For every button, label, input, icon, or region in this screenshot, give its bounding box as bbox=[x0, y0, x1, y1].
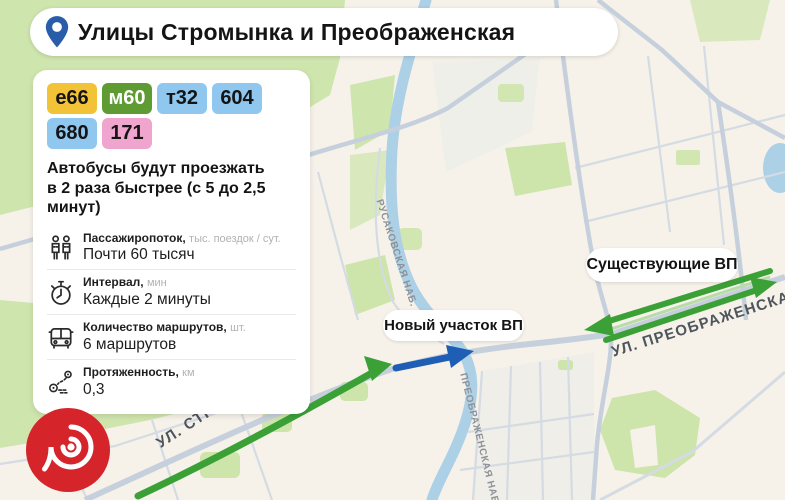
stat-label: Протяженность, bbox=[83, 365, 179, 379]
moscow-transport-logo bbox=[26, 408, 110, 492]
stat-row-passengers: Пассажиропоток, тыс. поездок / сут. Почт… bbox=[47, 226, 296, 270]
headline-line1: Автобусы будут проезжать bbox=[47, 159, 296, 179]
route-badge-171: 171 bbox=[102, 118, 152, 149]
bus-icon bbox=[47, 324, 83, 352]
title-bar: Улицы Стромынка и Преображенская bbox=[30, 8, 618, 56]
stat-row-routes-count: Количество маршрутов, шт. 6 маршрутов bbox=[47, 314, 296, 359]
stats-list: Пассажиропоток, тыс. поездок / сут. Почт… bbox=[47, 226, 296, 404]
stat-value: 0,3 bbox=[83, 381, 296, 399]
route-badge-e66: е66 bbox=[47, 83, 97, 114]
logo-circle bbox=[26, 408, 110, 492]
route-icon bbox=[47, 368, 83, 396]
stat-label: Пассажиропоток, bbox=[83, 231, 186, 245]
card-headline: Автобусы будут проезжать в 2 раза быстре… bbox=[47, 159, 296, 218]
stat-unit: км bbox=[182, 367, 194, 379]
info-card: е66 м60 т32 604 680 171 Автобусы будут п… bbox=[33, 70, 310, 414]
route-badges: е66 м60 т32 604 680 171 bbox=[47, 83, 296, 153]
location-pin-icon bbox=[44, 15, 70, 49]
stat-label: Интервал, bbox=[83, 275, 144, 289]
stat-row-interval: Интервал, мин Каждые 2 минуты bbox=[47, 269, 296, 314]
stat-value: Каждые 2 минуты bbox=[83, 291, 296, 309]
route-badge-604: 604 bbox=[212, 83, 262, 114]
callout-new-section: Новый участок ВП bbox=[383, 310, 524, 341]
callout-existing-lanes: Существующие ВП bbox=[586, 248, 738, 282]
route-badge-t32: т32 bbox=[157, 83, 207, 114]
stat-value: Почти 60 тысяч bbox=[83, 246, 296, 264]
logo-center-dot bbox=[67, 443, 74, 450]
stopwatch-icon bbox=[47, 279, 83, 307]
infographic-canvas: УЛ. СТРОМЫНКА УЛ. ПРЕОБРАЖЕНСКАЯ РУСАКОВ… bbox=[0, 0, 785, 500]
stat-value: 6 маршрутов bbox=[83, 336, 296, 354]
stat-label: Количество маршрутов, bbox=[83, 320, 227, 334]
route-badge-680: 680 bbox=[47, 118, 97, 149]
passengers-icon bbox=[47, 234, 83, 262]
headline-line2: в 2 раза быстрее (с 5 до 2,5 минут) bbox=[47, 179, 296, 218]
stat-unit: тыс. поездок / сут. bbox=[189, 233, 281, 245]
page-title: Улицы Стромынка и Преображенская bbox=[78, 19, 515, 46]
stat-unit: мин bbox=[147, 277, 167, 289]
stat-row-length: Протяженность, км 0,3 bbox=[47, 359, 296, 404]
route-badge-m60: м60 bbox=[102, 83, 152, 114]
stat-unit: шт. bbox=[230, 322, 246, 334]
